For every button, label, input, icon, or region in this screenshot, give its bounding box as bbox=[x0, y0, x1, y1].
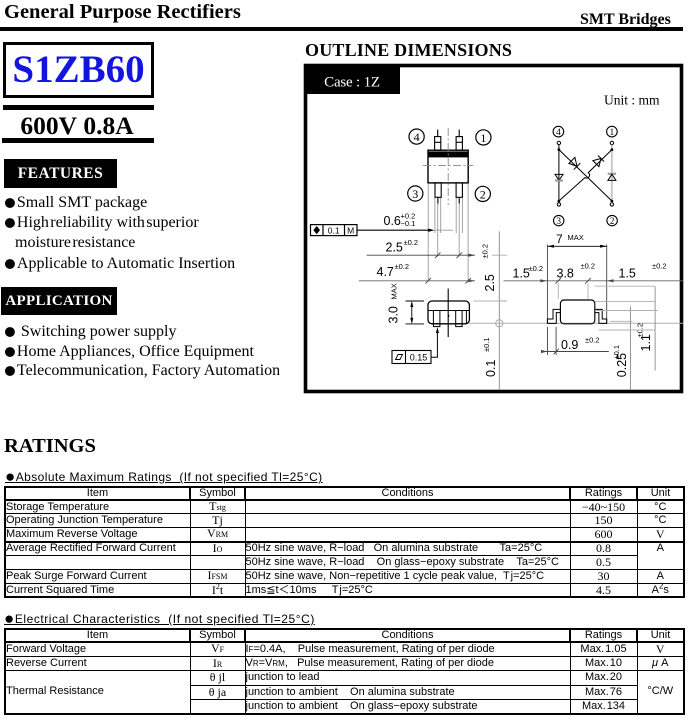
svg-text:7: 7 bbox=[556, 232, 563, 246]
svg-text:±0.2: ±0.2 bbox=[404, 238, 419, 247]
svg-text:±0.2: ±0.2 bbox=[529, 264, 544, 273]
svg-text:0.9: 0.9 bbox=[561, 338, 578, 352]
svg-text:2.5: 2.5 bbox=[386, 241, 403, 255]
svg-text:4: 4 bbox=[414, 130, 420, 144]
svg-text:±0.2: ±0.2 bbox=[581, 262, 596, 271]
svg-text:2: 2 bbox=[610, 216, 615, 226]
svg-text:3: 3 bbox=[412, 187, 418, 201]
svg-text:Unit : mm: Unit : mm bbox=[604, 93, 660, 108]
svg-text:MAX: MAX bbox=[568, 233, 584, 242]
svg-text:2.5: 2.5 bbox=[483, 274, 497, 291]
svg-text:M: M bbox=[347, 225, 354, 235]
svg-text:4.7: 4.7 bbox=[377, 265, 394, 279]
svg-text:±0.2: ±0.2 bbox=[395, 262, 410, 271]
svg-text:±0.1: ±0.1 bbox=[482, 337, 491, 352]
svg-text:−0.1: −0.1 bbox=[401, 219, 416, 228]
svg-text:3: 3 bbox=[556, 216, 561, 226]
svg-text:2: 2 bbox=[480, 187, 486, 201]
svg-text:±0.2: ±0.2 bbox=[652, 262, 667, 271]
svg-text:1.5: 1.5 bbox=[619, 267, 636, 281]
svg-text:1.5: 1.5 bbox=[513, 267, 530, 281]
svg-text:4: 4 bbox=[556, 128, 561, 138]
svg-text:0.15: 0.15 bbox=[410, 352, 428, 362]
svg-text:1: 1 bbox=[610, 128, 615, 138]
svg-text:0.1: 0.1 bbox=[484, 360, 498, 377]
svg-text:±0.2: ±0.2 bbox=[585, 336, 600, 345]
svg-text:0.1: 0.1 bbox=[328, 225, 340, 235]
svg-text:0.6: 0.6 bbox=[384, 214, 401, 228]
svg-text:Case : 1Z: Case : 1Z bbox=[324, 75, 380, 91]
svg-text:±0.2: ±0.2 bbox=[481, 244, 490, 259]
svg-text:3.8: 3.8 bbox=[557, 267, 574, 281]
svg-text:±0.1: ±0.1 bbox=[612, 345, 621, 360]
svg-text:1: 1 bbox=[480, 131, 486, 145]
svg-text:3.0: 3.0 bbox=[387, 306, 401, 323]
svg-text:MAX: MAX bbox=[390, 283, 399, 299]
